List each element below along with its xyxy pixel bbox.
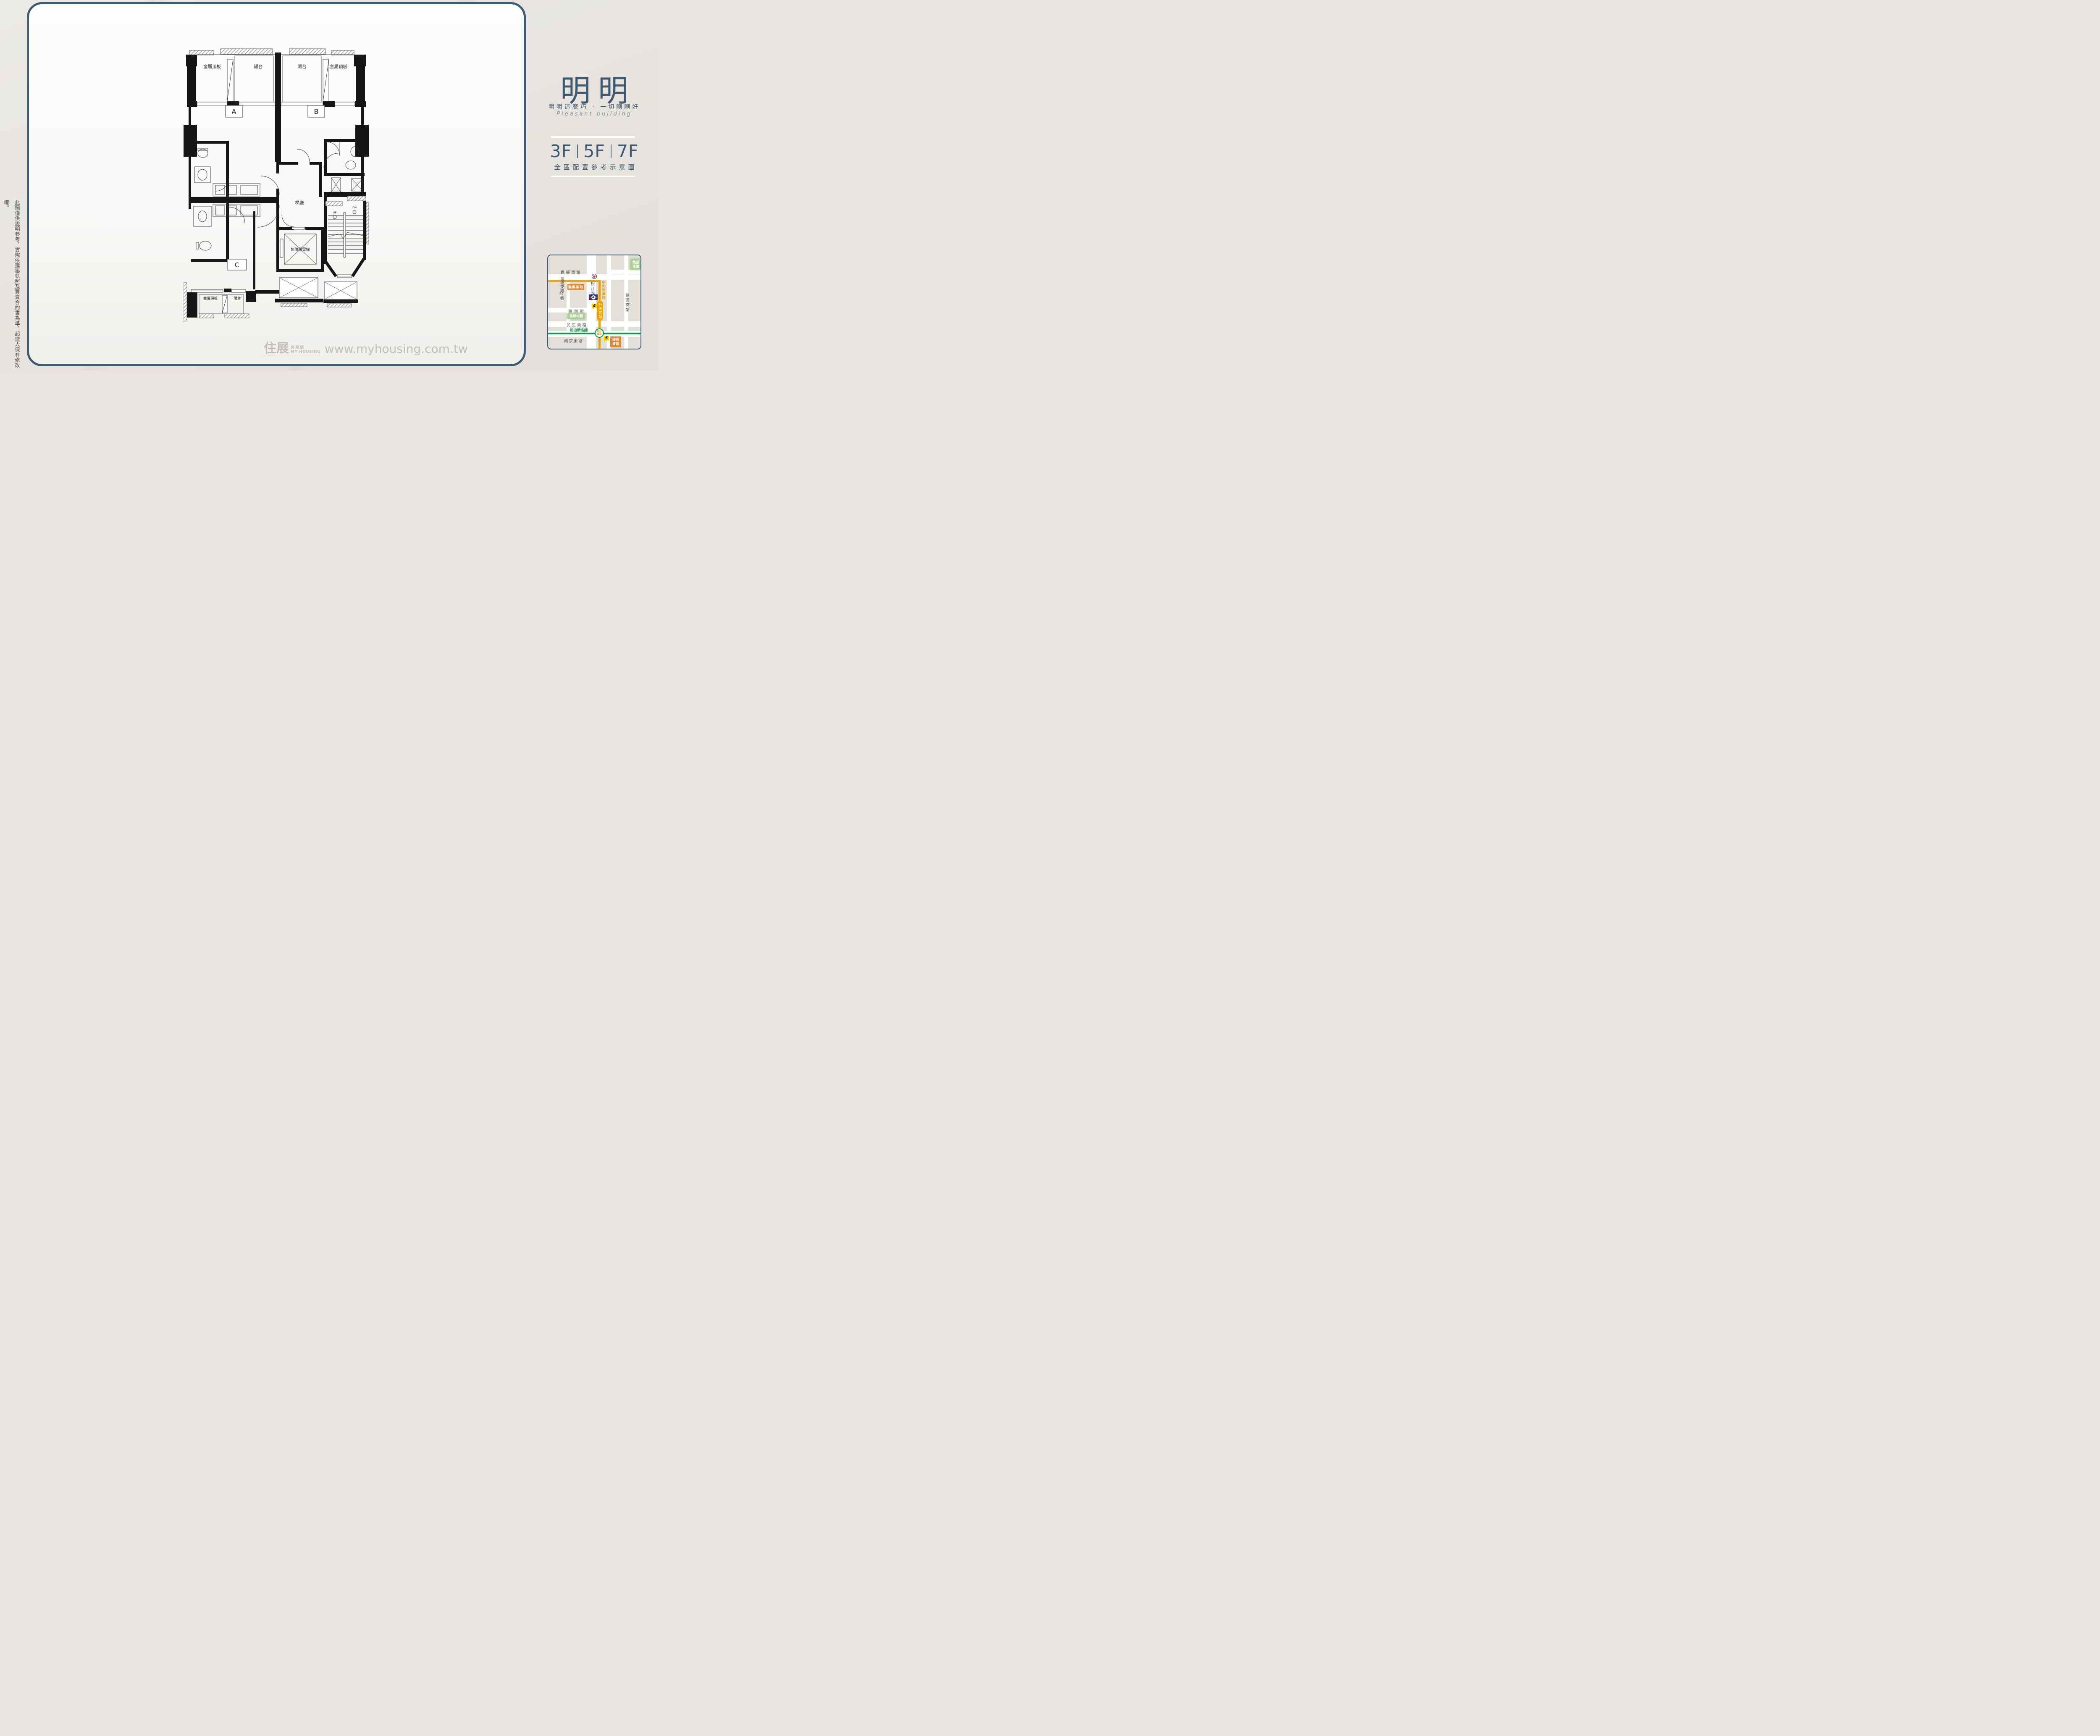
label-metal-top-left: 金屬頂板 — [203, 64, 221, 69]
logo-cn: 住展 — [264, 343, 289, 354]
label-balcony-b: 陽台 — [298, 64, 307, 69]
label-balcony-c: 陽台 — [234, 296, 241, 301]
lane-post: 巷 — [559, 296, 564, 300]
watermark-url: www.myhousing.com.tw — [325, 343, 468, 356]
floor-5f: 5F — [583, 141, 605, 161]
bank-icon: A — [589, 294, 598, 300]
floors-caption: 全區配置參考示意圖 — [542, 163, 647, 171]
watermark: 住展 房屋網 MY HOUSING www.myhousing.com.tw — [264, 343, 468, 356]
label-metal-bottom: 金屬頂板 — [203, 296, 218, 301]
rongxing-line1: 榮星 — [633, 260, 639, 265]
label-elevator: 無障礙電梯 — [291, 247, 310, 252]
label-minquan-lane: 民權東路92巷 — [559, 277, 564, 310]
bank-emblem: A — [591, 295, 596, 299]
floor-list: 3F 5F 7F — [542, 141, 647, 161]
brand-subtitle-en: Pleasant building — [542, 111, 647, 117]
reception-line1: 接待 — [612, 338, 619, 342]
reception-line2: 會館 — [612, 342, 619, 346]
floor-plan: 金屬頂板 陽台 陽台 金屬頂板 A B C 梯廳 無障礙電梯 UP DN 金屬頂… — [184, 47, 369, 322]
floor-separator — [611, 144, 612, 158]
logo-en: MY HOUSING — [291, 350, 320, 354]
stair-bay — [325, 258, 364, 278]
label-jianguo: 建國高架 — [624, 293, 630, 313]
brand-title: 明明 — [542, 76, 647, 106]
street-top-right — [611, 270, 641, 274]
label-minsheng: 民生東路 — [567, 322, 588, 328]
floor-3f: 3F — [550, 141, 572, 161]
label-unit-b: B — [314, 108, 319, 116]
poster-canvas: 此圖僅供說明參考，實際依建築執照及買賣合約書為準，起造人保有修改權。 — [0, 0, 659, 370]
post-office-icon: 郵 — [592, 274, 597, 279]
station-songjiang-nanjing: 松江 南京 — [595, 328, 604, 338]
site-box: 建築基地 — [567, 284, 584, 290]
sjnj-line2: 南京 — [597, 333, 601, 336]
label-songshan-xindian: 松山新店線 — [570, 328, 588, 333]
label-metal-top-right: 金屬頂板 — [330, 64, 347, 69]
rongxing-line2: 花園 — [633, 265, 639, 269]
label-stair-hall: 梯廳 — [295, 200, 304, 205]
songjin-park-box: 松錦公園 — [567, 313, 585, 319]
brand-tagline: 明明這麼巧 · 一切剛剛好 — [542, 102, 647, 111]
balcony-details — [191, 55, 355, 314]
floor-separator — [577, 144, 578, 158]
label-unit-c: C — [235, 261, 239, 269]
street-songjiang — [587, 255, 596, 349]
label-balcony-a: 陽台 — [254, 64, 263, 69]
station-xingtian: 行天宮站 — [597, 301, 603, 321]
logo-sub: 房屋網 — [291, 344, 320, 350]
lane-num: 92 — [559, 292, 564, 296]
divider-bottom — [551, 176, 635, 177]
lane-pre: 民權東路 — [559, 277, 564, 292]
divider-top — [551, 136, 635, 138]
reception-box: 接待 會館 — [610, 336, 621, 347]
brand-column: 明明 明明這麼巧 · 一切剛剛好 Pleasant building 3F 5F… — [542, 0, 647, 370]
rongxing-garden-box: 榮星 花園 — [630, 259, 641, 270]
station-xingtian-label: 行天宮站 — [598, 303, 603, 319]
label-dn: DN — [352, 206, 357, 209]
location-map: 民權東路 民權東路92巷 錦洲街 民生東路 南京東路 松江路 建國高架 中和新蘆… — [547, 255, 641, 349]
label-unit-a: A — [232, 108, 236, 116]
disclaimer-text: 此圖僅供說明參考，實際依建築執照及買賣合約書為準，起造人保有修改權。 — [12, 200, 23, 368]
floor-7f: 7F — [617, 141, 639, 161]
label-nanjing: 南京東路 — [564, 338, 583, 344]
myhousing-logo: 住展 房屋網 MY HOUSING — [264, 343, 320, 356]
street-mid — [607, 255, 611, 349]
label-minquan-e: 民權東路 — [561, 269, 582, 275]
label-zhonghe-xinlu: 中和新蘆線 — [601, 281, 606, 299]
label-up: UP — [333, 211, 337, 214]
parapet-hatch-top — [189, 49, 354, 55]
